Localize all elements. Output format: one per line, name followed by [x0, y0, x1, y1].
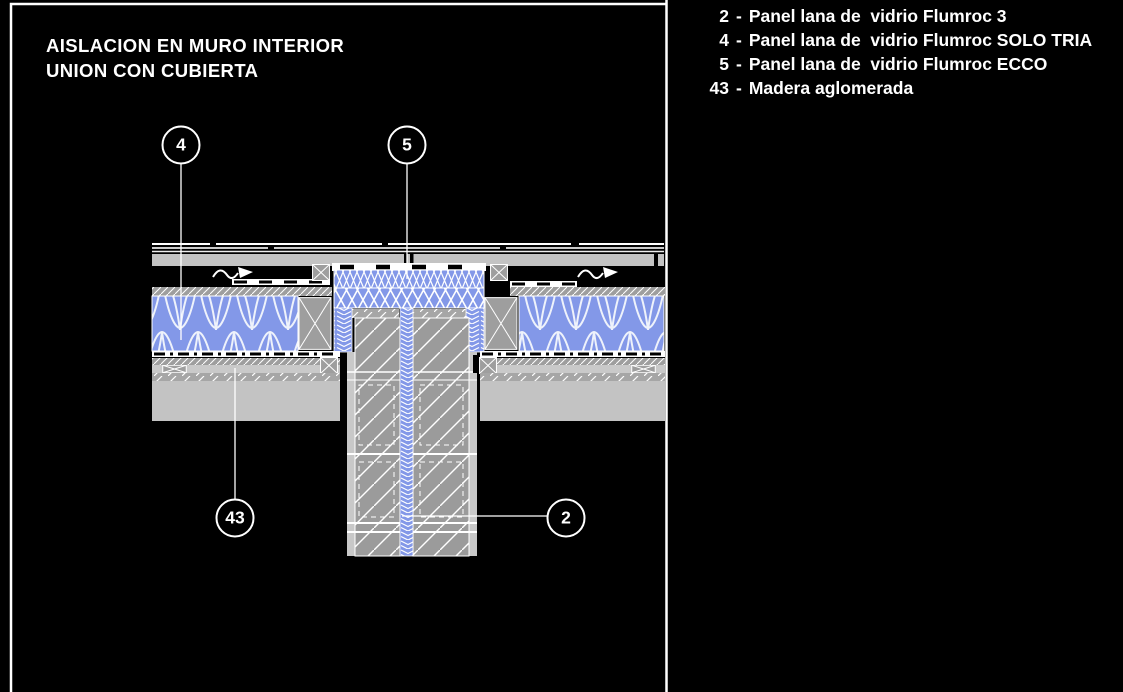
- legend-label: Panel lana de vidrio Flumroc ECCO: [749, 52, 1048, 76]
- break-mark-icon: [578, 267, 618, 278]
- drawing-title: AISLACION EN MURO INTERIORUNION CON CUBI…: [46, 33, 344, 83]
- batten-xbox-icon: [313, 265, 330, 281]
- callout-number: 4: [176, 135, 186, 156]
- title-line2: UNION CON CUBIERTA: [46, 60, 258, 81]
- callout-bubble-43: 43: [216, 499, 255, 538]
- interior-wall-column: [347, 308, 477, 556]
- legend-label: Panel lana de vidrio Flumroc SOLO TRIA: [749, 28, 1092, 52]
- legend-item-5: 5-Panel lana de vidrio Flumroc ECCO: [682, 52, 1092, 76]
- cad-viewport[interactable]: AISLACION EN MURO INTERIORUNION CON CUBI…: [0, 0, 1123, 692]
- beam-xbox-icon: [299, 298, 331, 350]
- break-mark-icon: [213, 267, 253, 278]
- callout-number: 2: [561, 508, 571, 529]
- callout-bubble-4: 4: [162, 126, 201, 165]
- furring-xbox-icon: [163, 365, 187, 373]
- furring-xbox-icon: [480, 358, 497, 374]
- legend-item-4: 4-Panel lana de vidrio Flumroc SOLO TRIA: [682, 28, 1092, 52]
- legend-num: 2: [682, 4, 729, 28]
- legend-separator: -: [729, 76, 749, 100]
- legend-separator: -: [729, 4, 749, 28]
- legend-num: 5: [682, 52, 729, 76]
- callout-bubble-2: 2: [547, 499, 586, 538]
- callout-number: 5: [402, 135, 412, 156]
- roof-sheeting-lines: [152, 242, 664, 252]
- legend-item-43: 43-Madera aglomerada: [682, 76, 1092, 100]
- legend-item-2: 2-Panel lana de vidrio Flumroc 3: [682, 4, 1092, 28]
- batten-xbox-icon: [491, 265, 508, 281]
- beam-xbox-icon: [485, 298, 517, 350]
- legend-separator: -: [729, 52, 749, 76]
- legend-num: 43: [682, 76, 729, 100]
- title-line1: AISLACION EN MURO INTERIOR: [46, 35, 344, 56]
- callout-bubble-5: 5: [388, 126, 427, 165]
- furring-xbox-icon: [321, 358, 338, 374]
- legend-separator: -: [729, 28, 749, 52]
- legend-label: Madera aglomerada: [749, 76, 913, 100]
- furring-xbox-icon: [632, 365, 656, 373]
- callout-number: 43: [225, 508, 244, 529]
- keynote-legend: 2-Panel lana de vidrio Flumroc 3 4-Panel…: [682, 4, 1092, 100]
- section-drawing: [0, 0, 1123, 692]
- legend-num: 4: [682, 28, 729, 52]
- legend-label: Panel lana de vidrio Flumroc 3: [749, 4, 1007, 28]
